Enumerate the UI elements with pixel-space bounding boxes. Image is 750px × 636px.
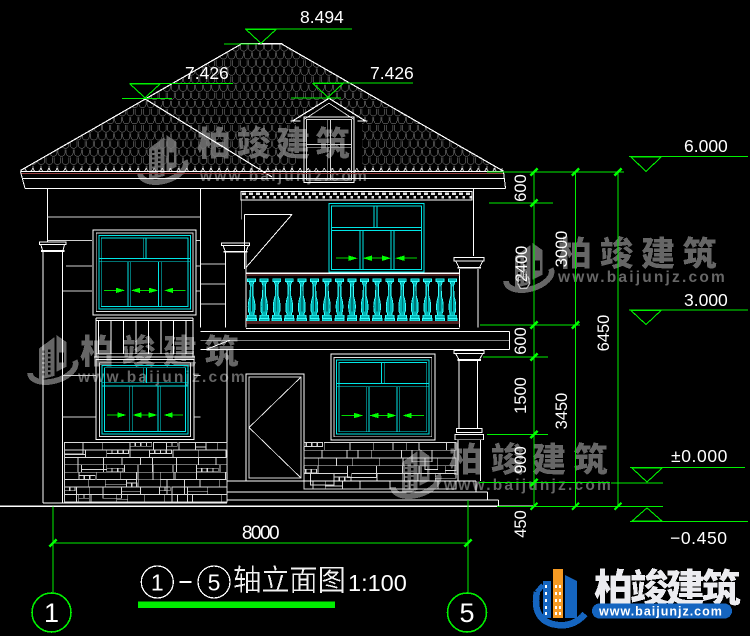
svg-text:8.494: 8.494	[300, 7, 344, 27]
svg-text:5: 5	[208, 570, 221, 596]
svg-text:5: 5	[459, 598, 474, 628]
svg-text:3000: 3000	[553, 231, 571, 268]
svg-text:600: 600	[512, 327, 530, 355]
svg-text:3.000: 3.000	[684, 290, 728, 310]
svg-text:3450: 3450	[553, 393, 571, 430]
svg-text:8000: 8000	[242, 523, 279, 544]
svg-text:6450: 6450	[595, 315, 613, 352]
svg-text:7.426: 7.426	[370, 63, 414, 83]
svg-text:1: 1	[44, 598, 59, 628]
svg-text:7.426: 7.426	[185, 63, 229, 83]
svg-text:600: 600	[512, 174, 530, 202]
svg-text:www.baijunjz.com: www.baijunjz.com	[557, 269, 727, 286]
svg-text:1:100: 1:100	[348, 570, 407, 596]
svg-text:1500: 1500	[512, 377, 530, 414]
svg-text:±0.000: ±0.000	[671, 446, 728, 466]
svg-text:450: 450	[512, 510, 530, 538]
svg-text:6.000: 6.000	[684, 136, 728, 156]
svg-text:www.baijunjz.com: www.baijunjz.com	[598, 605, 723, 619]
svg-text:900: 900	[512, 446, 530, 474]
svg-text:1: 1	[151, 570, 164, 596]
svg-text:−0.450: −0.450	[670, 528, 728, 548]
